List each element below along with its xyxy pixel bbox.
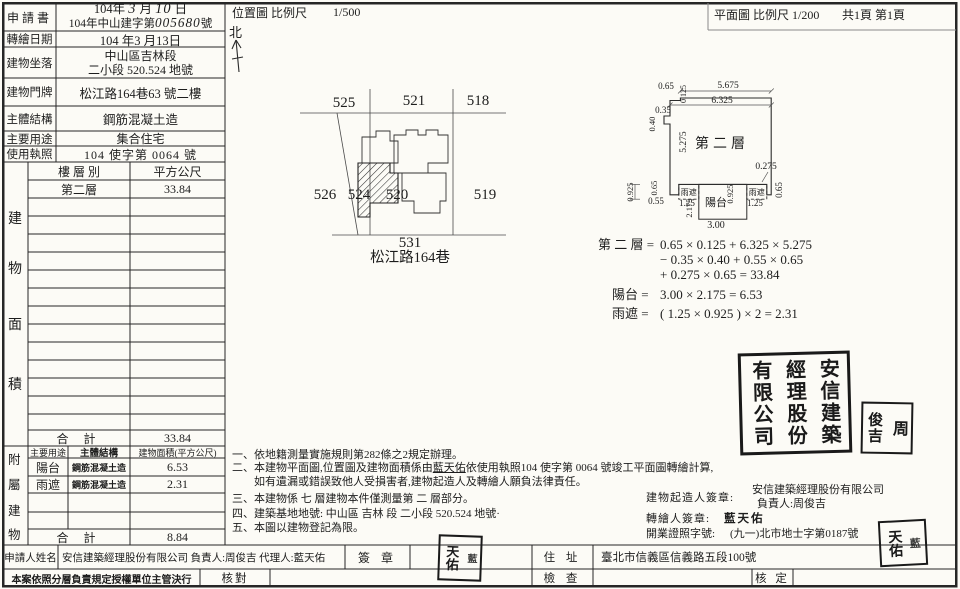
dim-top-total-w: 6.325	[711, 96, 733, 106]
annex-row-structure: 鋼筋混凝土造	[68, 458, 130, 476]
redraw-date-label: 轉繪日期	[3, 31, 56, 47]
company-seal-stamp: 安信建築 經理股份 有限公司	[738, 351, 853, 456]
structure-label: 主體結構	[3, 106, 56, 131]
annex-row-use: 陽台	[28, 458, 68, 476]
annex-total-label: 合 計	[28, 529, 130, 545]
calc-floor-line2: − 0.35 × 0.40 + 0.55 × 0.65	[660, 252, 803, 267]
floor-row-name: 第二層	[28, 180, 130, 198]
plot-label-519: 519	[474, 187, 497, 203]
location-map-title: 位置圖 比例尺 1/500	[232, 4, 360, 20]
application-date-day-unit: 日	[175, 2, 188, 16]
annex-total-area: 8.84	[130, 529, 225, 545]
dim-notch-w: 0.35	[655, 105, 671, 115]
annex-col-use: 主要用途	[28, 446, 68, 458]
calc-floor-label: 第 二 層 =	[598, 237, 660, 252]
street-label: 松江路164巷	[340, 248, 480, 264]
annex-col-area: 建物面積(平方公尺)	[130, 446, 225, 458]
dim-right-step-w: 0.275	[755, 162, 777, 172]
side-label-char-mian: 面	[8, 314, 22, 334]
dim-balcony-w: 3.00	[707, 220, 725, 231]
floor-total-area: 33.84	[130, 430, 225, 446]
builder-company: 安信建築經理股份有限公司	[752, 482, 884, 495]
delegation-note: 本案依照分層負責規定授權單位主管決行	[3, 569, 200, 587]
calc-floor-line3: + 0.275 × 0.65 = 33.84	[660, 267, 780, 282]
calc-canopy-label: 雨遮 =	[598, 306, 660, 321]
plot-label-525: 525	[333, 95, 356, 111]
drafter-seal-col-1: 藍	[906, 536, 923, 548]
annex-row-area: 2.31	[130, 476, 225, 493]
person-seal-col-2: 俊吉	[864, 412, 886, 444]
usage-value: 集合住宅	[56, 131, 225, 146]
license-no-label: 開業證照字號:	[646, 526, 715, 539]
side-label-char-jian: 建	[8, 208, 22, 228]
location-map-title-text: 位置圖 比例尺	[232, 4, 307, 21]
annex-row-use: 雨遮	[28, 476, 68, 493]
drafter-seal-col-1: 藍	[463, 553, 478, 564]
plan-floor-label: 第二層	[695, 135, 749, 152]
person-seal-stamp: 周 俊吉	[861, 402, 914, 455]
license-label: 使用執照	[3, 146, 56, 162]
drafter-sign-label: 轉繪人簽章:	[646, 511, 710, 524]
calc-floor-line1: 0.65 × 0.125 + 6.325 × 5.275	[660, 237, 812, 252]
license-value: 104 使字第 0064 號	[56, 146, 225, 162]
dim-left-h: 5.275	[679, 131, 689, 153]
dim-left-step-h: 0.65	[649, 181, 659, 196]
application-no-suffix: 號	[201, 18, 213, 30]
dim-balcony-h: 2.175	[684, 198, 694, 217]
location-map-scale: 1/500	[333, 5, 360, 20]
drafter-name: 藍天佑	[724, 511, 765, 524]
applicant-value: 安信建築經理股份有限公司 負責人:周俊吉 代理人:藍天佑	[58, 545, 345, 569]
floor-row-area: 33.84	[130, 180, 225, 198]
dim-top-left-w: 0.65	[658, 81, 674, 91]
annex-side-char-fu: 附	[8, 449, 21, 468]
area-calculations: 第 二 層 = 0.65 × 0.125 + 6.325 × 5.275 − 0…	[598, 237, 812, 321]
plot-label-526: 526	[314, 187, 337, 203]
dim-notch-h: 0.40	[647, 117, 657, 132]
plan-canopy-right-label: 雨遮	[749, 187, 765, 197]
plan-canopy-left-label: 雨遮	[681, 187, 697, 197]
note-2-post: 依使用執照104 使字第 0064 號竣工平面圖轉繪計算,	[466, 462, 714, 474]
plan-balcony-label: 陽台	[705, 195, 727, 209]
dim-top-left-h: 0.125	[679, 85, 688, 103]
calc-balcony-expr: 3.00 × 2.175 = 6.53	[660, 287, 762, 302]
drafter-seal-stamp: 藍 天佑	[437, 534, 483, 582]
application-value: 104年 3 月 10 日 104年中山建字第005680號	[56, 3, 225, 31]
approve-label: 核 定	[752, 569, 793, 587]
survey-document-page: 申請書 104年 3 月 10 日 104年中山建字第005680號 轉繪日期 …	[0, 0, 960, 589]
north-label: 北	[229, 24, 242, 38]
page-info: 共1頁 第1頁	[842, 6, 905, 22]
building-address-value: 松江路164巷63 號二樓	[56, 78, 225, 106]
drafter-seal-col-2: 天佑	[442, 544, 462, 571]
floor-col-header: 樓 層 別	[28, 162, 130, 180]
note-2: 二、本建物平面圖,位置圖及建物面積係由藍天佑依使用執照104 使字第 0064 …	[232, 462, 857, 475]
dim-left-step-w: 0.55	[648, 196, 664, 206]
calc-balcony-label: 陽台 =	[598, 287, 660, 302]
site-line1: 中山區吉林段	[104, 49, 176, 63]
application-label: 申請書	[3, 3, 56, 31]
dim-right-canopy-h: 0.925	[725, 184, 735, 203]
site-label: 建物坐落	[3, 47, 56, 78]
side-label-char-wu: 物	[8, 258, 22, 278]
builder-person: 負責人:周俊吉	[757, 496, 826, 509]
calc-spacer	[598, 267, 660, 282]
calc-spacer	[598, 252, 660, 267]
annex-side-char-jian: 建	[8, 500, 21, 519]
annex-side-char-wu: 物	[8, 524, 21, 543]
application-no-prefix: 104年中山建字第	[69, 18, 155, 30]
builder-sign-label: 建物起造人簽章:	[646, 490, 734, 503]
dim-right-canopy-w: 1.25	[747, 198, 763, 208]
sign-cell-label: 簽 章	[345, 545, 410, 569]
redraw-date-value: 104 年3 月13日	[56, 31, 225, 47]
drafter-seal-col-2: 天佑	[883, 529, 904, 558]
inspect-label: 檢 查	[532, 569, 593, 587]
company-seal-col-1: 安信建築	[813, 358, 844, 447]
building-address-label: 建物門牌	[3, 78, 56, 106]
plot-label-524: 524	[348, 187, 371, 203]
note-2-drafter-name: 藍天佑	[433, 462, 466, 474]
annex-col-structure: 主體結構	[68, 446, 130, 458]
application-date-month-hand: 3	[128, 1, 136, 17]
annex-side-char-shu: 屬	[8, 474, 21, 493]
dim-right-step-h: 0.65	[774, 182, 784, 198]
annex-row-structure: 鋼筋混凝土造	[68, 476, 130, 493]
floor-total-label: 合 計	[28, 430, 130, 446]
check-label: 核對	[200, 569, 270, 587]
dim-left-canopy-h: 0.925	[625, 182, 635, 201]
area-col-header: 平方公尺	[130, 162, 225, 180]
note-2-pre: 二、本建物平面圖,位置圖及建物面積係由	[232, 462, 433, 474]
company-seal-col-2: 經理股份	[779, 359, 810, 448]
plan-title: 平面圖 比例尺 1/200	[714, 6, 819, 22]
floor-plan: 0.65 0.125 5.675 6.325 0.35 0.40 5.275 第…	[610, 78, 860, 240]
residence-label: 住 址	[532, 545, 593, 569]
applicant-label: 申請人姓名	[3, 545, 58, 569]
side-label-char-ji: 積	[8, 374, 22, 394]
site-value: 中山區吉林段 二小段 520.524 地號	[56, 47, 225, 78]
company-seal-col-3: 有限公司	[746, 360, 777, 449]
site-line2: 二小段 520.524 地號	[88, 63, 193, 77]
residence-value: 臺北市信義區信義路五段100號	[593, 545, 893, 569]
drafter-seal-stamp: 藍 天佑	[878, 519, 928, 567]
dim-top-w: 5.675	[717, 81, 739, 91]
north-arrow-icon	[229, 38, 247, 74]
plot-label-520: 520	[386, 187, 409, 203]
application-date-year: 104年	[94, 2, 125, 16]
structure-value: 鋼筋混凝土造	[56, 106, 225, 131]
plot-label-521: 521	[403, 93, 426, 109]
location-map: 525 521 518 526 524 520 519 531	[292, 85, 512, 257]
application-no-hand: 005680	[155, 15, 201, 30]
license-no-value: (九一)北市地士字第0187號	[730, 526, 858, 539]
plot-label-518: 518	[467, 93, 490, 109]
calc-canopy-expr: ( 1.25 × 0.925 ) × 2 = 2.31	[660, 306, 798, 321]
usage-label: 主要用途	[3, 131, 56, 146]
person-seal-col-1: 周	[886, 420, 910, 436]
annex-row-area: 6.53	[130, 458, 225, 476]
application-date-month-unit: 月	[140, 2, 153, 16]
